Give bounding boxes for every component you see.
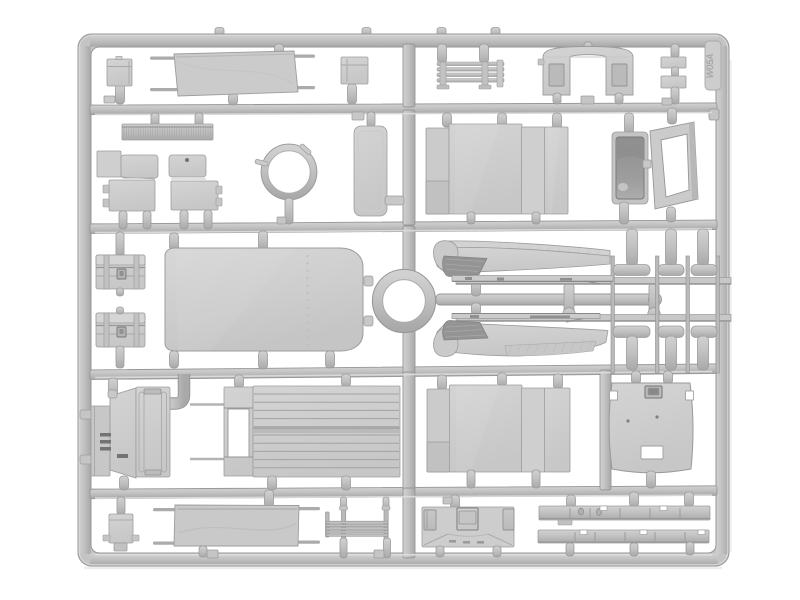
svg-text:W05A: W05A	[705, 54, 715, 79]
